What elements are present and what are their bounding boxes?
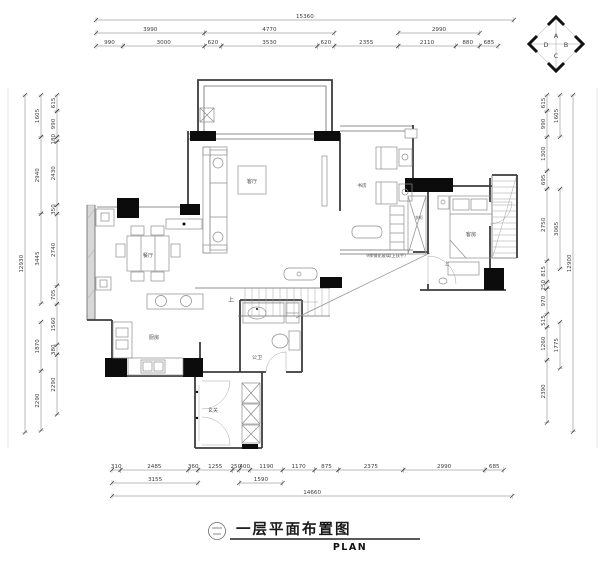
balcony-ac-unit xyxy=(200,108,214,122)
svg-text:990: 990 xyxy=(541,118,547,129)
drawing-subtitle: PLAN xyxy=(333,542,367,553)
room-label: 厨房 xyxy=(149,333,159,341)
svg-text:615: 615 xyxy=(541,97,547,108)
svg-text:620: 620 xyxy=(320,40,331,46)
compass-letter: A xyxy=(554,32,559,40)
bed xyxy=(438,196,492,258)
svg-text:620: 620 xyxy=(208,40,219,46)
svg-text:1605: 1605 xyxy=(554,108,560,123)
room-label: 上 xyxy=(445,260,450,267)
svg-text:515: 515 xyxy=(541,315,547,326)
svg-text:3155: 3155 xyxy=(148,477,163,483)
svg-text:12930: 12930 xyxy=(19,254,25,272)
room-label: 9厚钢化玻璃(上扶手) xyxy=(366,252,406,259)
dining-table-set xyxy=(116,219,202,281)
sofa xyxy=(203,147,227,253)
compass-letter: C xyxy=(554,52,559,60)
svg-text:2750: 2750 xyxy=(541,217,547,232)
floor-plan-canvas: 1536039904770299099030006203530620235521… xyxy=(0,0,600,564)
study-armchairs xyxy=(376,147,412,204)
svg-text:2990: 2990 xyxy=(437,464,452,470)
svg-text:14660: 14660 xyxy=(303,490,321,496)
svg-text:2375: 2375 xyxy=(364,464,379,470)
svg-text:3530: 3530 xyxy=(262,40,277,46)
svg-text:875: 875 xyxy=(321,464,332,470)
svg-text:1870: 1870 xyxy=(35,339,41,354)
stair-bench xyxy=(284,268,317,280)
svg-text:380: 380 xyxy=(51,344,57,355)
svg-text:350: 350 xyxy=(51,204,57,215)
svg-text:1260: 1260 xyxy=(541,336,547,351)
svg-text:1300: 1300 xyxy=(541,146,547,161)
compass-rose: ABCD xyxy=(529,17,583,71)
svg-text:2740: 2740 xyxy=(51,242,57,257)
wall-cabinet-lower xyxy=(96,277,111,290)
wall-cabinet-upper xyxy=(96,209,114,226)
walls xyxy=(87,80,517,448)
svg-text:2290: 2290 xyxy=(35,393,41,408)
svg-text:990: 990 xyxy=(51,118,57,129)
svg-text:1560: 1560 xyxy=(51,317,57,332)
svg-text:3445: 3445 xyxy=(35,251,41,266)
compass-letter: B xyxy=(564,41,568,49)
svg-text:1190: 1190 xyxy=(259,464,274,470)
room-label: 客房 xyxy=(466,230,476,238)
room-label: 公卫 xyxy=(252,355,262,361)
svg-text:2990: 2990 xyxy=(432,27,447,33)
svg-text:3990: 3990 xyxy=(143,27,158,33)
svg-text:970: 970 xyxy=(541,295,547,306)
svg-text:2940: 2940 xyxy=(35,168,41,183)
room-label: 衣柜 xyxy=(415,214,423,220)
drawing-title: 一层平面布置图 xyxy=(236,520,352,538)
svg-text:1170: 1170 xyxy=(291,464,306,470)
svg-text:1590: 1590 xyxy=(254,477,269,483)
svg-text:2110: 2110 xyxy=(420,40,435,46)
svg-text:2290: 2290 xyxy=(51,377,57,392)
svg-text:3065: 3065 xyxy=(554,221,560,236)
floor-plan-sheet: 1536039904770299099030006203530620235521… xyxy=(0,0,600,564)
study-cabinet xyxy=(352,206,404,250)
bedroom-door xyxy=(428,256,456,284)
detail-marker-icon xyxy=(209,523,226,540)
svg-text:2430: 2430 xyxy=(51,166,57,181)
svg-text:615: 615 xyxy=(51,97,57,108)
room-label: 玄关 xyxy=(208,407,218,414)
svg-text:695: 695 xyxy=(541,174,547,185)
room-label: 上 xyxy=(228,296,234,304)
svg-text:400: 400 xyxy=(239,464,250,470)
dimension-chains: 1536039904770299099030006203530620235521… xyxy=(19,14,576,499)
bathroom-fixtures xyxy=(243,303,300,372)
svg-text:360: 360 xyxy=(188,464,199,470)
tv-cabinet xyxy=(322,156,327,206)
svg-text:1255: 1255 xyxy=(208,464,223,470)
svg-text:815: 815 xyxy=(541,266,547,277)
furniture xyxy=(96,108,516,445)
svg-text:1775: 1775 xyxy=(554,338,560,353)
svg-text:12900: 12900 xyxy=(567,254,573,272)
wardrobe xyxy=(408,196,426,254)
room-label: 书房 xyxy=(357,182,367,189)
duct-shafts xyxy=(242,383,260,443)
terrace-steps xyxy=(493,181,516,253)
svg-text:685: 685 xyxy=(484,40,495,46)
svg-text:3000: 3000 xyxy=(157,40,172,46)
compass-letter: D xyxy=(543,41,548,49)
svg-text:1605: 1605 xyxy=(35,108,41,123)
svg-text:4770: 4770 xyxy=(262,27,277,33)
svg-text:880: 880 xyxy=(462,40,473,46)
room-label: 客厅 xyxy=(247,177,257,185)
svg-text:2355: 2355 xyxy=(359,40,374,46)
svg-text:705: 705 xyxy=(51,289,57,300)
svg-text:2485: 2485 xyxy=(147,464,162,470)
title-block: 一层平面布置图 PLAN xyxy=(209,520,421,553)
stair-treads xyxy=(240,288,329,316)
terrace-door xyxy=(490,202,512,224)
svg-text:15360: 15360 xyxy=(296,14,314,20)
room-label: 餐厅 xyxy=(143,251,153,259)
svg-text:685: 685 xyxy=(489,464,500,470)
svg-text:2390: 2390 xyxy=(541,384,547,399)
svg-text:990: 990 xyxy=(104,40,115,46)
